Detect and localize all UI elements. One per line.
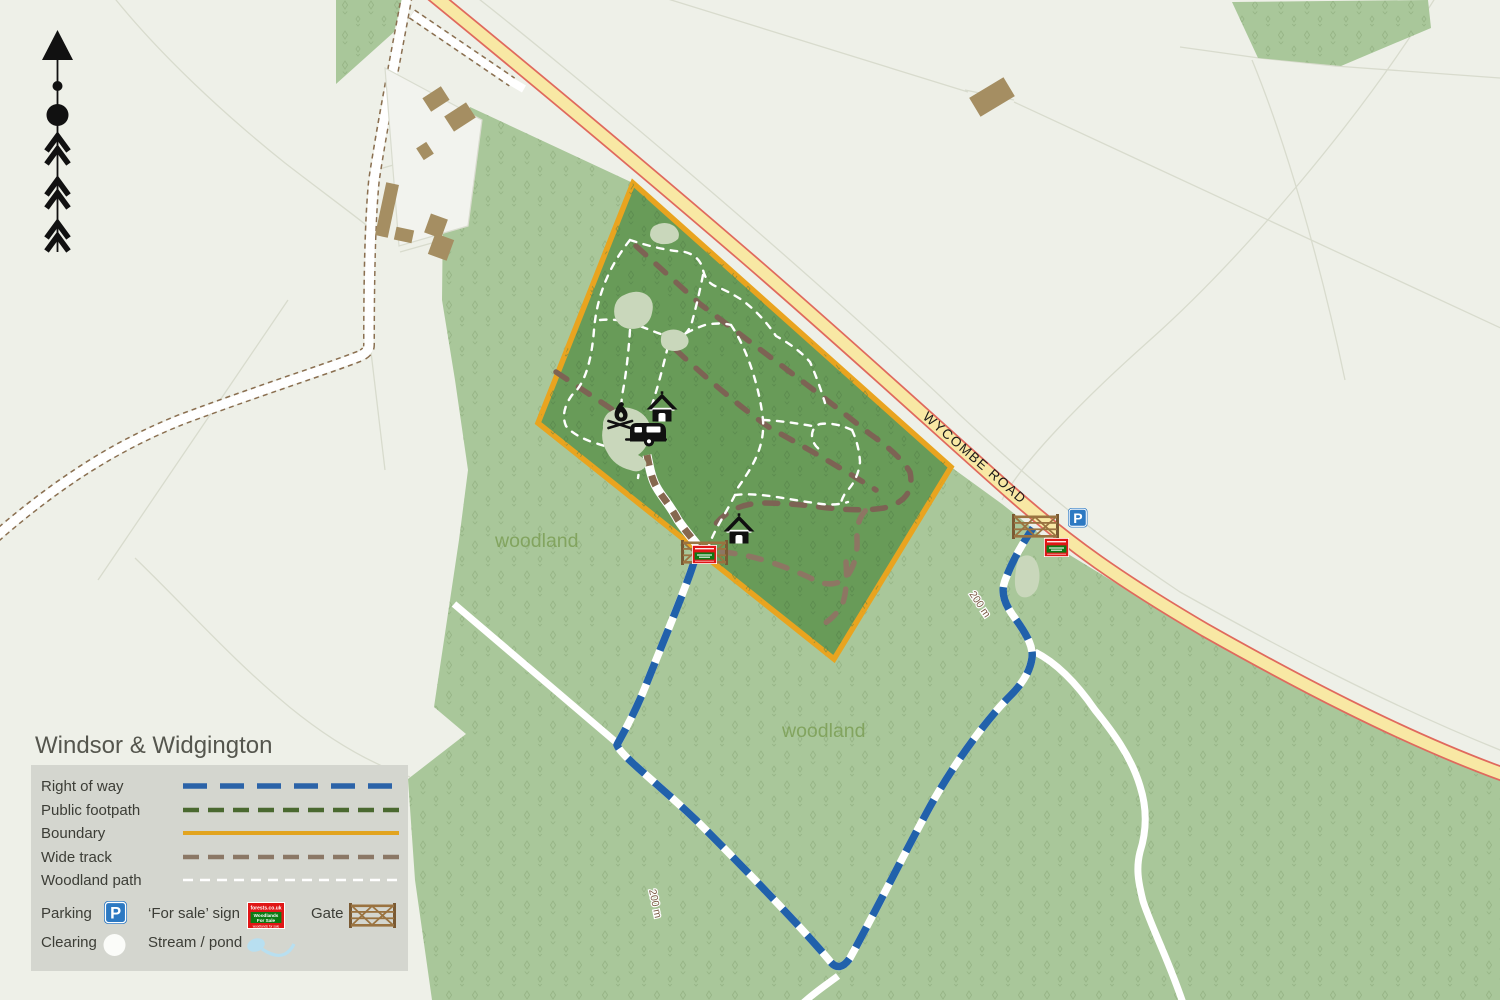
svg-text:Gate: Gate [311, 905, 344, 922]
svg-text:Wide track: Wide track [41, 849, 112, 866]
svg-text:Stream / pond: Stream / pond [148, 934, 242, 951]
svg-text:Public footpath: Public footpath [41, 802, 140, 819]
svg-text:Boundary: Boundary [41, 825, 106, 842]
svg-text:woodland: woodland [494, 530, 578, 552]
svg-text:‘For sale’ sign: ‘For sale’ sign [148, 905, 240, 922]
svg-text:Clearing: Clearing [41, 934, 97, 951]
svg-text:woodland: woodland [781, 720, 865, 742]
svg-text:Windsor & Widgington: Windsor & Widgington [35, 732, 272, 759]
svg-text:Parking: Parking [41, 905, 92, 922]
svg-text:Right of way: Right of way [41, 778, 124, 795]
svg-text:Woodland path: Woodland path [41, 872, 142, 889]
